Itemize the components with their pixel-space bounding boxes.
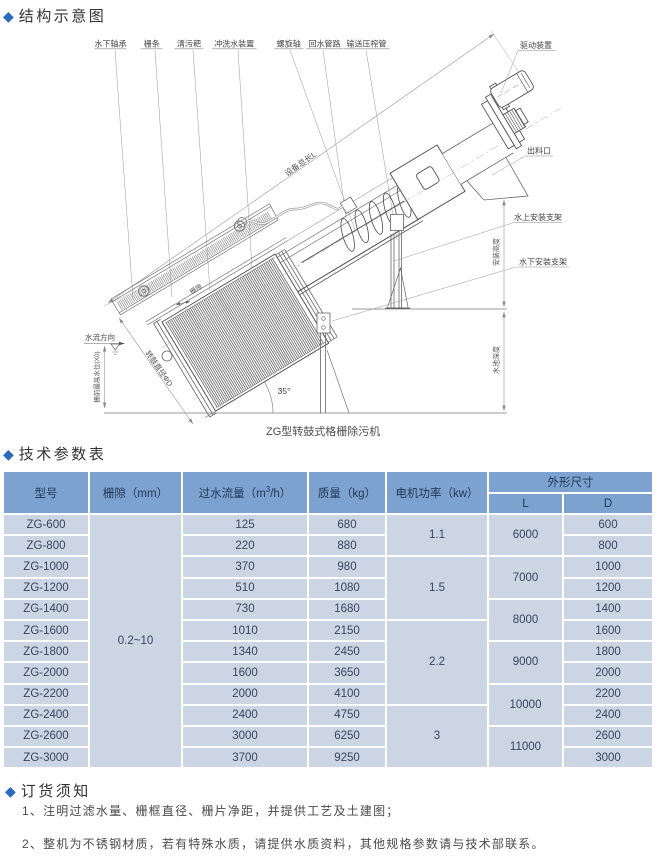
svg-text:螺旋轴: 螺旋轴	[277, 39, 301, 49]
svg-text:水流方向: 水流方向	[85, 332, 115, 342]
svg-text:栅隙: 栅隙	[188, 281, 204, 296]
svg-text:设备总长L: 设备总长L	[282, 149, 318, 178]
svg-text:转鼓直径ΦD: 转鼓直径ΦD	[143, 348, 175, 388]
svg-text:驱动装置: 驱动装置	[520, 40, 552, 50]
svg-text:冲洗水装置: 冲洗水装置	[214, 39, 254, 49]
svg-text:水下轴承: 水下轴承	[95, 39, 127, 49]
svg-text:出料口: 出料口	[527, 146, 551, 156]
svg-text:水上安装支架: 水上安装支架	[514, 212, 562, 222]
svg-text:清污耙: 清污耙	[177, 39, 201, 49]
svg-text:水池深度: 水池深度	[492, 346, 501, 374]
svg-text:水下安装支架: 水下安装支架	[519, 257, 567, 267]
svg-text:回水管路: 回水管路	[309, 39, 341, 49]
svg-text:输送压榨管: 输送压榨管	[347, 39, 387, 49]
svg-text:安装高度: 安装高度	[492, 238, 501, 266]
svg-text:栅前最高水位(X0): 栅前最高水位(X0)	[92, 351, 101, 402]
svg-text:35°: 35°	[278, 386, 291, 396]
svg-text:栅条: 栅条	[144, 39, 160, 49]
